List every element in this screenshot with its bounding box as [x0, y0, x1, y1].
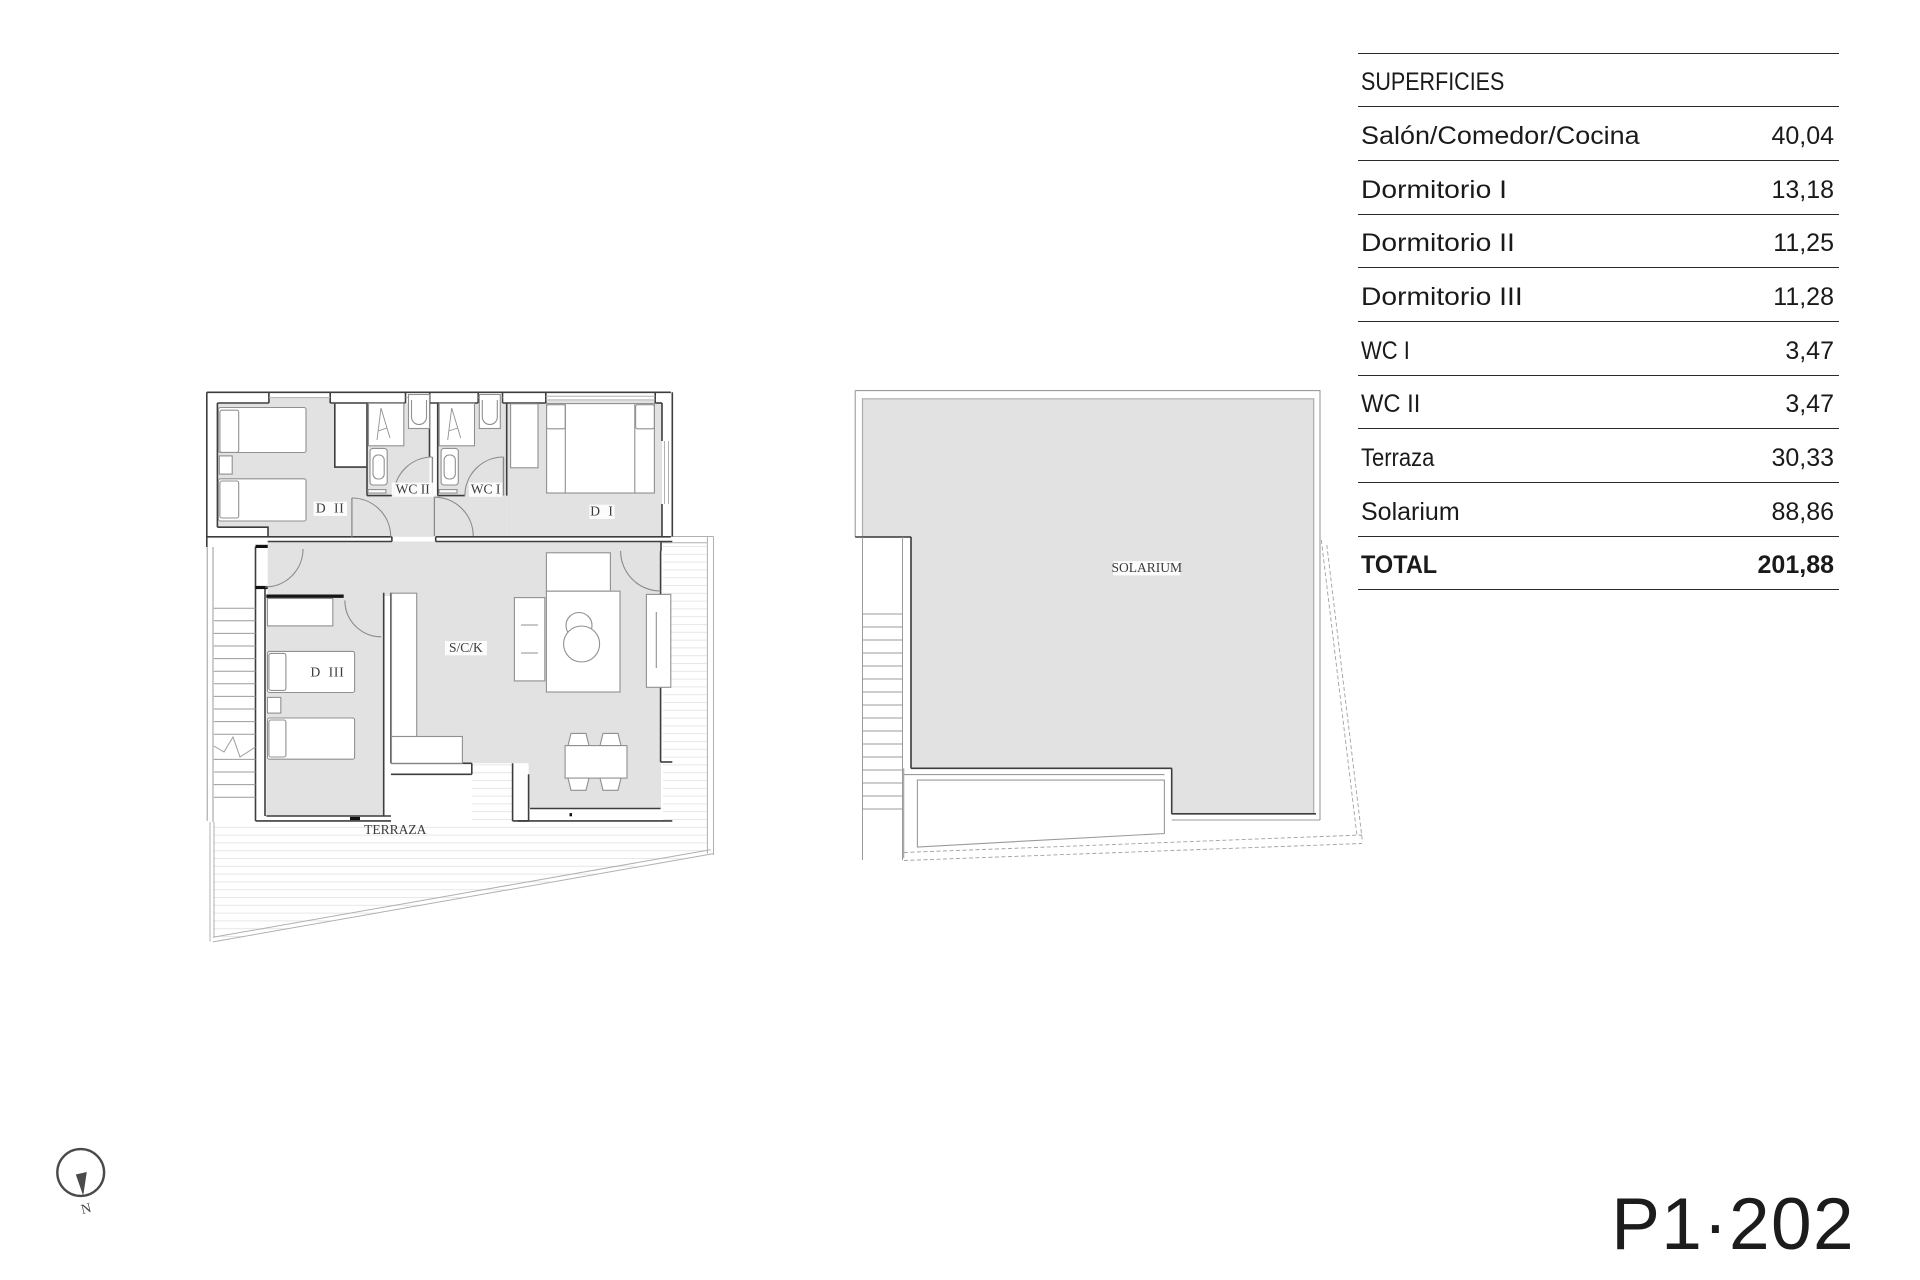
svg-text:TERRAZA: TERRAZA	[364, 822, 426, 837]
svg-text:SOLARIUM: SOLARIUM	[1111, 560, 1182, 575]
svg-text:D I: D I	[590, 504, 613, 519]
svg-text:WC I: WC I	[471, 481, 501, 496]
svg-text:D III: D III	[311, 664, 345, 679]
svg-text:WC II: WC II	[396, 481, 431, 496]
svg-text:S/C/K: S/C/K	[449, 640, 483, 655]
svg-text:D II: D II	[316, 501, 345, 516]
